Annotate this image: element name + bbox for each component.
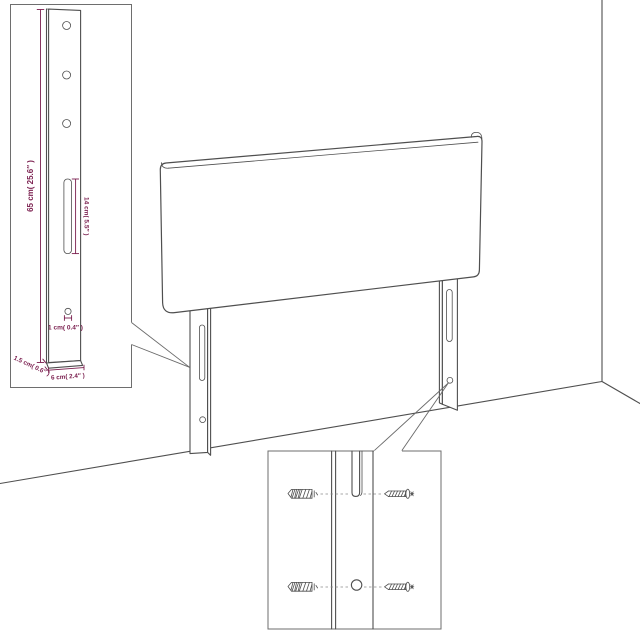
right-leg (439, 275, 457, 410)
callout-box (268, 451, 441, 629)
floor-line-right (602, 382, 640, 404)
callout-line (132, 345, 190, 368)
leg-detail-callout-lines (132, 323, 190, 368)
leg-drawing (47, 9, 83, 368)
height-dimension-label: 65 cm( 25.6″ ) (26, 160, 35, 212)
callout-line (402, 383, 449, 451)
hole-dimension-label: 1 cm( 0.4″ ) (48, 325, 83, 332)
hardware-detail-callout (268, 451, 441, 629)
product-diagram: 65 cm( 25.6″ ) 14 cm( 5.5″ ) 1 cm( 0.4″ … (0, 0, 640, 640)
right-leg-face (442, 275, 457, 410)
callout-line (374, 383, 448, 451)
leg-detail-callout: 65 cm( 25.6″ ) 14 cm( 5.5″ ) 1 cm( 0.4″ … (11, 5, 132, 388)
assembly-diagram-canvas: 65 cm( 25.6″ ) 14 cm( 5.5″ ) 1 cm( 0.4″ … (0, 0, 640, 640)
slot-dimension-label: 14 cm( 5.5″ ) (83, 197, 90, 236)
callout-line (132, 323, 190, 368)
left-leg-side (208, 300, 211, 456)
hole-closeup (351, 580, 361, 590)
left-leg (190, 300, 211, 456)
headboard (160, 132, 482, 312)
hardware-detail-callout-lines (374, 383, 448, 451)
headboard-panel (160, 136, 482, 312)
